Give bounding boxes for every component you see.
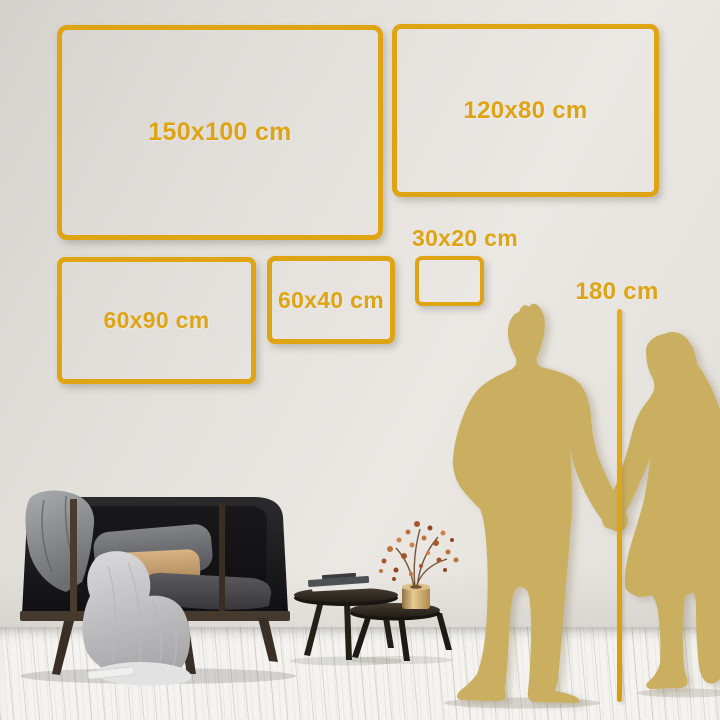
size-guide-mockup: 150x100 cm 120x80 cm 60x90 cm 60x40 cm 3… xyxy=(0,0,720,720)
frame-size-label-30x20: 30x20 cm xyxy=(412,225,518,252)
silhouettes xyxy=(453,304,720,703)
branch-blossoms xyxy=(379,521,459,581)
frame-size-label: 60x40 cm xyxy=(278,287,384,314)
frame-size-label: 150x100 cm xyxy=(148,118,291,147)
frame-30x20 xyxy=(415,256,484,306)
frame-size-label: 60x90 cm xyxy=(104,307,210,334)
height-reference-line xyxy=(617,309,622,702)
table-leg xyxy=(304,601,324,656)
coffee-tables xyxy=(294,521,459,661)
sofa xyxy=(20,491,290,686)
frame-120x80: 120x80 cm xyxy=(392,24,659,197)
frame-60x90: 60x90 cm xyxy=(57,257,256,384)
wood-post-left xyxy=(70,499,77,614)
table-leg xyxy=(352,615,372,658)
wood-post-right xyxy=(219,503,225,612)
sofa-leg xyxy=(258,618,278,662)
frame-150x100: 150x100 cm xyxy=(57,25,383,240)
sofa-leg xyxy=(52,621,74,675)
coffee-table-large-top xyxy=(294,588,398,603)
frame-60x40: 60x40 cm xyxy=(267,256,395,344)
frame-size-label: 120x80 cm xyxy=(463,97,587,125)
books-stack xyxy=(308,573,371,592)
table-leg xyxy=(398,617,410,661)
man-silhouette xyxy=(453,304,628,703)
table-leg xyxy=(436,613,452,650)
height-reference-label: 180 cm xyxy=(561,278,673,306)
